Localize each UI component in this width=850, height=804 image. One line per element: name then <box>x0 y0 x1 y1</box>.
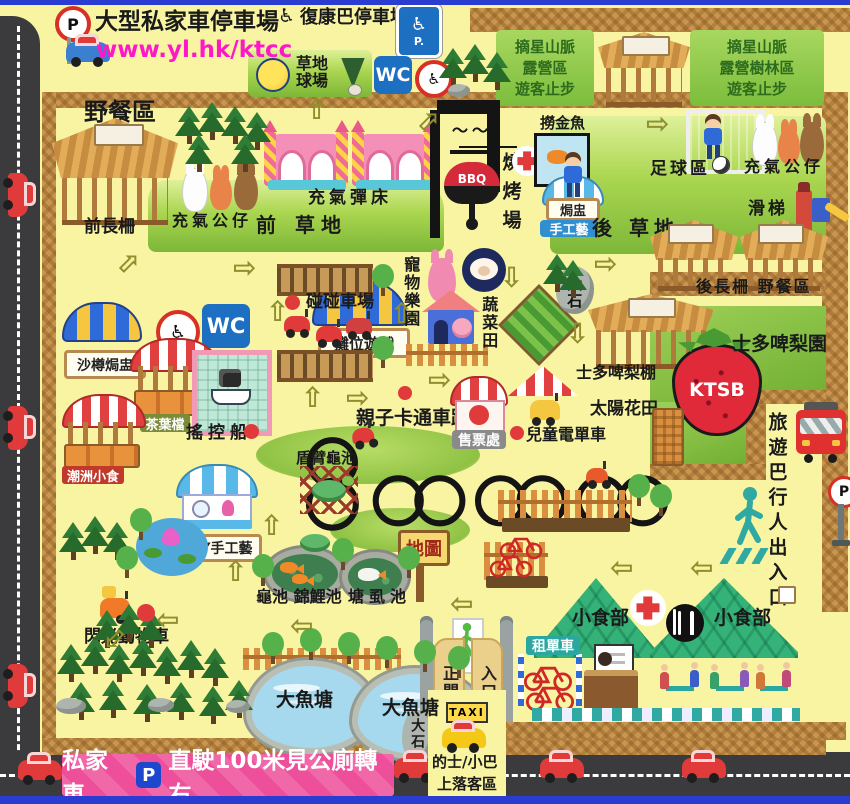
direction-arrow-icon: ⇧ <box>390 300 413 328</box>
strawberry-shed-sign <box>628 298 676 318</box>
tour-bus-pedestrian-exit-label: 旅遊巴行人出入口 <box>766 412 787 612</box>
direction-arrow-icon: ⇧ <box>110 246 146 282</box>
grass-court-label: 草地 球場 <box>296 55 328 90</box>
gate-rock-label: 大石 <box>409 718 424 750</box>
bike-stand-post <box>576 654 582 706</box>
bike-rental-text: 租單車 <box>532 636 574 656</box>
direction-arrow-icon: ⇦ <box>450 590 473 618</box>
vendor-icon <box>598 652 612 666</box>
bbq-grill-icon: BBQ <box>444 162 500 228</box>
location-dot-icon <box>244 424 259 439</box>
big-fish-pond-1-label: 大魚塘 <box>276 690 333 711</box>
banner-private-car: 私家車 <box>62 741 129 804</box>
park-map: P 大型私家車停車場 www.yl.hk/ktcc ♿ 復康巴停車場 ♿ P. … <box>0 0 850 804</box>
accessible-parking-sign: ♿ P. <box>396 4 442 58</box>
p-pole <box>838 504 844 542</box>
camp-a-line1: 摘星山脈 <box>496 37 594 58</box>
grass-court-line1: 草地 <box>296 55 328 72</box>
inflatable-dolls-east-label: 充氣公仔 <box>744 158 824 175</box>
chiuchow-crates <box>64 444 140 468</box>
bumper-car-zone-label: 碰碰車場 <box>306 293 374 311</box>
inflatable-dolls-west-label: 充氣公仔 <box>172 212 252 229</box>
bike-rental-label-box: 租單車 <box>526 636 580 655</box>
turtle-koi-ponds-label: 龜池 錦鯉池 <box>256 588 342 605</box>
direction-arrow-icon: ⇨ <box>428 366 451 394</box>
taxi-sign-text: TAXI <box>449 706 485 719</box>
rock-icon <box>226 700 250 713</box>
camp-b-line2: 露營樹林區 <box>690 58 824 79</box>
back-shed-sign <box>668 224 714 244</box>
flash-car-box-icon <box>102 586 116 598</box>
tour-bus-icon <box>796 402 846 460</box>
camp-b-line3: 遊客止步 <box>690 79 824 100</box>
border-bottom <box>0 796 850 804</box>
p-pole-base <box>832 540 850 546</box>
round-tree-icon <box>372 336 394 368</box>
handicraft-text: 手工藝 <box>549 219 588 238</box>
ticket-office-label-box: 售票處 <box>452 430 506 449</box>
accessible-parking-p: P. <box>414 35 424 48</box>
rock-icon <box>148 698 174 712</box>
pine-tree-icon <box>186 134 212 172</box>
direction-arrow-icon: ⇦ <box>156 606 179 634</box>
bouncy-trampoline-label: 充氣彈床 <box>308 189 392 207</box>
round-tree-icon <box>448 646 470 678</box>
border-top <box>0 0 850 5</box>
diner-icon <box>756 672 765 689</box>
pet-house-icon <box>422 290 480 348</box>
camp-b-line1: 摘星山脈 <box>690 37 824 58</box>
round-tree-icon <box>252 554 274 586</box>
handicraft-label-box: 手工藝 <box>540 220 598 237</box>
rail-track-icon <box>277 350 373 382</box>
rock-icon <box>448 84 470 97</box>
direction-arrow-icon: ⇧ <box>224 558 247 586</box>
tea-stall-label-box: 茶葉檔 <box>140 414 190 432</box>
snack-first-aid-icon <box>630 590 666 626</box>
tortoise-pen-icon <box>300 466 358 514</box>
crossing-stripes-icon <box>719 548 776 564</box>
bicycle-icon <box>498 530 544 560</box>
round-tree-icon <box>414 640 436 672</box>
bouncy-castle-icon <box>264 120 348 190</box>
steam-icon: 〜〜 <box>452 122 492 139</box>
diner-icon <box>782 670 791 687</box>
snack-bar-2-label: 小食部 <box>714 608 771 629</box>
kart-rider-icon <box>351 427 375 445</box>
fence-top-right <box>470 8 850 32</box>
round-tree-icon <box>116 546 138 578</box>
red-car-icon <box>540 758 584 778</box>
sand-jar-canopy <box>62 302 142 342</box>
direction-arrow-icon: ⇦ <box>610 554 633 582</box>
wc-mid-text: WC <box>207 314 246 338</box>
snack-fence <box>506 722 846 740</box>
location-dot-icon <box>137 604 155 622</box>
direction-arrow-icon: ⇨ <box>233 254 256 282</box>
sunflower-field-label: 太陽花田 <box>590 400 658 418</box>
location-dot-icon <box>510 426 524 440</box>
camp-hut-posts <box>606 68 682 107</box>
strawberry-garden-label: 士多啤梨園 <box>732 334 827 355</box>
direction-arrow-icon: ⇩ <box>566 320 589 348</box>
red-car-icon <box>8 664 28 708</box>
pine-tree-icon <box>232 134 258 172</box>
pond-turtle-icon <box>300 534 330 552</box>
kid-icon <box>560 152 586 204</box>
rc-boat-label: 搖控船 <box>186 424 252 442</box>
diner-icon <box>710 672 719 689</box>
diner-icon <box>690 670 699 687</box>
bbq-grill-text: BBQ <box>458 172 487 186</box>
direction-arrow-icon: ⇨ <box>594 250 617 278</box>
round-tree-icon <box>628 474 650 506</box>
pine-tree-icon <box>560 260 586 298</box>
bumper-car-icon <box>316 326 342 342</box>
tortoise-pond-label: 盾臂龜池 <box>296 450 356 466</box>
pine-tree-icon <box>100 680 126 718</box>
pine-tree-icon <box>200 686 226 724</box>
direction-arrow-icon: ⇨ <box>646 110 669 138</box>
round-tree-icon <box>398 546 420 578</box>
soccer-ball-icon <box>712 156 730 174</box>
direction-arrow-icon: ⇩ <box>500 264 523 292</box>
direction-banner: 私家車 P 直駛100米見公廁轉右 <box>62 754 394 796</box>
diner-icon <box>660 672 669 689</box>
direction-arrow-icon: ⇦ <box>690 554 713 582</box>
wc-sign-mid: WC <box>202 304 250 348</box>
direction-arrow-icon: ⇧ <box>305 96 328 124</box>
taxi-zone-line2: 上落客區 <box>437 776 497 792</box>
accessible-parking-wheelchair-icon: ♿ <box>411 14 427 35</box>
back-shed-picnic-label: 後長柵 野餐區 <box>696 278 812 295</box>
front-shed-sign <box>94 124 144 146</box>
rental-bicycle-icon <box>524 678 576 712</box>
bbq-wall-h <box>437 100 493 114</box>
fox-icon <box>210 174 232 210</box>
pedestrian-walker-icon <box>732 486 768 554</box>
round-tree-icon <box>262 632 284 664</box>
location-dot-icon <box>398 386 412 400</box>
rehab-bus-park-label: 復康巴停車場 <box>300 8 408 27</box>
fork-knife-icon <box>666 604 704 642</box>
diner-icon <box>740 670 749 687</box>
cafe-table-icon <box>666 686 694 691</box>
red-car-icon <box>8 173 28 217</box>
direction-arrow-icon: ⇨ <box>346 384 369 412</box>
red-car-icon <box>682 758 726 778</box>
red-car-icon <box>18 760 62 780</box>
front-lawn-label: 前 草地 <box>256 215 347 237</box>
snack-checker-strip <box>532 708 800 721</box>
vegetable-field-label: 蔬菜田 <box>480 296 497 350</box>
parking-p: P <box>67 15 79 34</box>
slide-label: 滑梯 <box>748 200 788 218</box>
direction-arrow-icon: ⇧ <box>260 512 283 540</box>
goldfish-scoop-label: 撈金魚 <box>540 115 585 131</box>
rabbit-icon <box>182 168 208 212</box>
banner-instruction: 直駛100米見公廁轉右 <box>168 741 394 804</box>
round-tree-icon <box>332 538 354 570</box>
snack-bar-1-label: 小食部 <box>572 608 629 629</box>
site-url[interactable]: www.yl.hk/ktcc <box>96 38 292 63</box>
fence-left <box>42 92 56 752</box>
strawberry-shed-label: 士多啤梨棚 <box>576 364 656 381</box>
rock-icon <box>56 698 86 714</box>
catfish-pond-label: 塘虱池 <box>348 588 411 605</box>
camp-hut-sign <box>622 36 670 56</box>
wc-sign-top: WC <box>374 56 412 94</box>
kids-scooter-icon <box>530 400 560 420</box>
round-tree-icon <box>376 636 398 668</box>
round-tree-icon <box>338 632 360 664</box>
taxi-car-icon <box>442 728 486 748</box>
hay-stack-icon <box>652 408 684 466</box>
soccer-zone-label: 足球區 <box>650 160 710 178</box>
car-park-title: 大型私家車停車場 <box>95 10 279 35</box>
volleyball-icon <box>256 58 290 92</box>
kids-motorbike-label: 兒童電單車 <box>526 426 606 443</box>
tea-stall-text: 茶葉檔 <box>145 414 184 433</box>
direction-arrow-icon: ⇧ <box>266 298 289 326</box>
red-car-icon <box>8 406 28 450</box>
bumper-car-icon <box>346 318 372 334</box>
chiuchow-text: 潮洲小食 <box>67 466 119 485</box>
round-tree-icon <box>130 508 152 540</box>
grass-court-line2: 球場 <box>296 72 328 89</box>
banner-p-badge: P <box>136 762 161 788</box>
skewer-icon <box>450 150 490 154</box>
white-marker <box>778 586 796 604</box>
front-shed-label: 前長柵 <box>84 218 135 236</box>
pine-tree-icon <box>202 648 228 686</box>
wheelchair-icon: ♿ <box>278 6 295 27</box>
round-tree-icon <box>650 484 672 516</box>
wc-top-text: WC <box>376 64 411 86</box>
kart-rider-icon <box>586 468 608 483</box>
taxi-zone-line1: 的士/小巴 <box>432 754 497 770</box>
round-tree-icon <box>372 264 394 296</box>
camp-zone-b: 摘星山脈 露營樹林區 遊客止步 <box>690 30 824 106</box>
squirrel-icon <box>234 170 258 210</box>
cafe-table-icon <box>716 686 744 691</box>
strawberry-logo-text: KTSB <box>689 379 745 401</box>
p-pole-text: P <box>839 484 849 500</box>
chiuchow-label-box: 潮洲小食 <box>62 466 124 484</box>
pine-tree-icon <box>484 52 510 90</box>
kids-motorbike-canopy <box>508 366 578 396</box>
sand-jar-text: 沙樽焗盅 <box>77 355 133 375</box>
back-shed-sign-2 <box>758 224 804 244</box>
direction-arrow-icon: ⇧ <box>301 384 324 412</box>
ticket-office-text: 售票處 <box>458 430 500 450</box>
direction-arrow-icon: ⇦ <box>290 612 313 640</box>
shuttlecock-base-icon <box>348 84 362 96</box>
big-fish-pond-2-label: 大魚塘 <box>382 698 439 719</box>
